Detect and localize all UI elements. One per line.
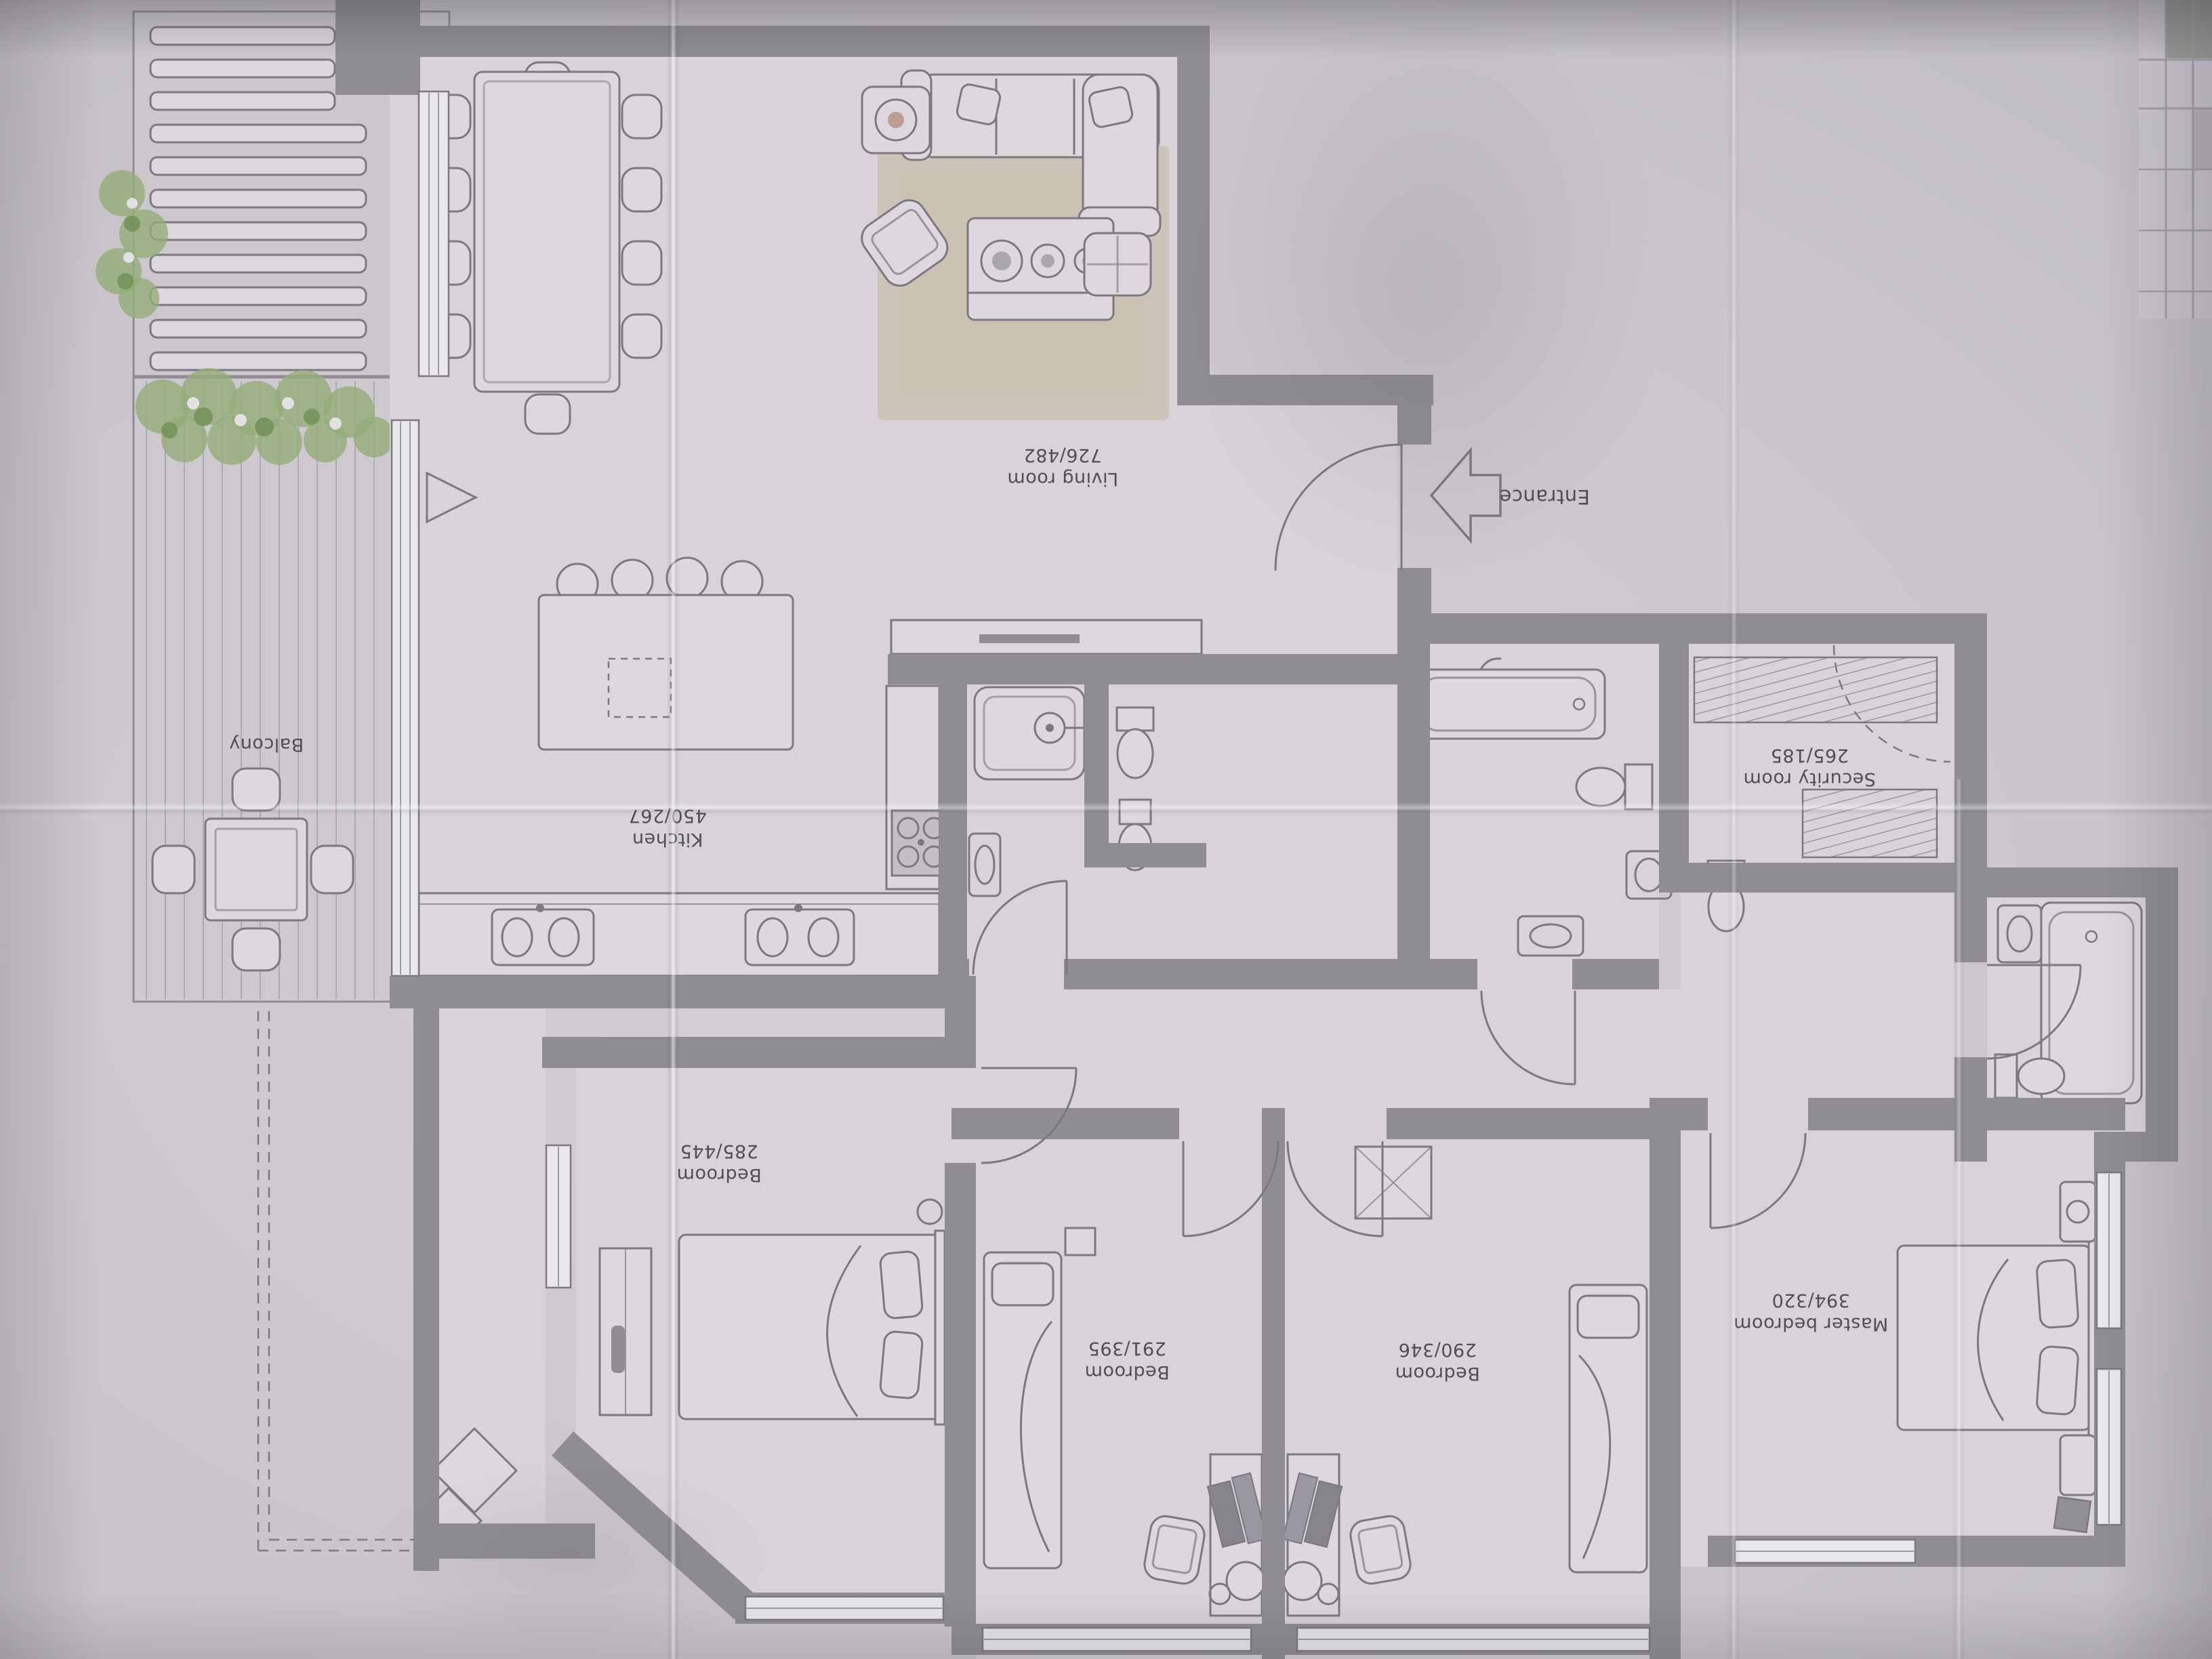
kitchen-name: Kitchen <box>632 829 703 850</box>
bedroom2-size: 291/395 <box>1088 1338 1166 1359</box>
toilet <box>1576 764 1652 809</box>
window <box>392 420 419 976</box>
toilet-tank <box>1120 800 1151 824</box>
shower-tray <box>975 687 1084 779</box>
balcony-chair <box>152 846 194 893</box>
label-entrance: Entrance <box>1499 485 1590 508</box>
stool <box>2054 1497 2091 1532</box>
balcony-name: Balcony <box>229 734 304 755</box>
projection-dashed-lines <box>258 1011 415 1551</box>
dining-chair <box>622 168 661 211</box>
living-room-size: 726/482 <box>1023 445 1102 466</box>
label-balcony: Balcony <box>229 734 304 755</box>
bedroom3-size: 290/346 <box>1398 1339 1477 1360</box>
plant-side-table <box>862 87 930 153</box>
bedroom2-name: Bedroom <box>1084 1361 1170 1382</box>
pillow <box>880 1251 923 1319</box>
dining-chair <box>622 95 661 138</box>
sideboard <box>891 620 1202 654</box>
floor-plan-photo: Living room 726/482 Kitchen 450/267 Secu… <box>0 0 2212 1659</box>
master-bedroom-size: 394/320 <box>1771 1290 1850 1311</box>
office-chair <box>1227 1562 1265 1600</box>
kitchen-island <box>539 595 793 750</box>
toilet <box>1995 1054 2064 1098</box>
bathtub <box>1411 670 1605 739</box>
wardrobe-hatched <box>1803 790 1937 857</box>
dresser <box>600 1248 651 1415</box>
master-bedroom-name: Master bedroom <box>1734 1313 1889 1334</box>
bedroom3-name: Bedroom <box>1395 1363 1480 1384</box>
entrance-arrow <box>1431 450 1500 541</box>
wardrobe-hatched <box>1694 657 1937 722</box>
armchair <box>1348 1514 1412 1586</box>
living-room-furniture <box>855 70 1169 420</box>
balcony-chair <box>232 769 280 811</box>
kitchen-stool <box>667 558 708 598</box>
pillow <box>992 1263 1053 1305</box>
sofa-pillow <box>956 83 1002 126</box>
sliding-door-window <box>419 91 449 376</box>
dining-chair <box>525 394 570 434</box>
nightstand <box>2060 1182 2095 1242</box>
floor-plan-drawing: Living room 726/482 Kitchen 450/267 Secu… <box>0 0 2212 1659</box>
bedroom1-size: 285/445 <box>680 1141 758 1162</box>
nightstand <box>2060 1435 2095 1495</box>
kitchen-counter <box>419 893 939 976</box>
pillow <box>2036 1346 2079 1415</box>
toilet-tank <box>1117 708 1153 731</box>
pillow <box>2036 1259 2079 1328</box>
dining-chair <box>622 241 661 285</box>
balcony-chair <box>311 846 353 893</box>
ottoman <box>1084 233 1151 295</box>
entrance-text: Entrance <box>1499 485 1590 508</box>
balcony-chair <box>232 928 280 970</box>
sideboard-handle <box>979 634 1080 643</box>
dining-chair <box>622 314 661 358</box>
office-chair <box>1284 1562 1322 1600</box>
bedroom1-name: Bedroom <box>676 1164 762 1185</box>
kitchen-size: 450/267 <box>628 805 707 826</box>
living-room-name: Living room <box>1007 468 1118 489</box>
balcony-area <box>134 377 392 1002</box>
armchair <box>1142 1514 1206 1586</box>
dining-table <box>474 72 619 392</box>
toilet-bowl <box>1118 729 1153 778</box>
security-room-name: Security room <box>1743 769 1876 790</box>
pillow <box>1578 1296 1639 1338</box>
bedside-cabinet <box>1065 1228 1095 1255</box>
security-room-size: 265/185 <box>1770 745 1849 766</box>
sofa-pillow <box>1088 86 1134 129</box>
headboard <box>935 1231 945 1425</box>
arrow-left-icon <box>1431 450 1500 541</box>
corner-plan-fragment <box>2139 0 2212 319</box>
pillow <box>880 1331 923 1399</box>
balcony-table <box>205 819 307 920</box>
